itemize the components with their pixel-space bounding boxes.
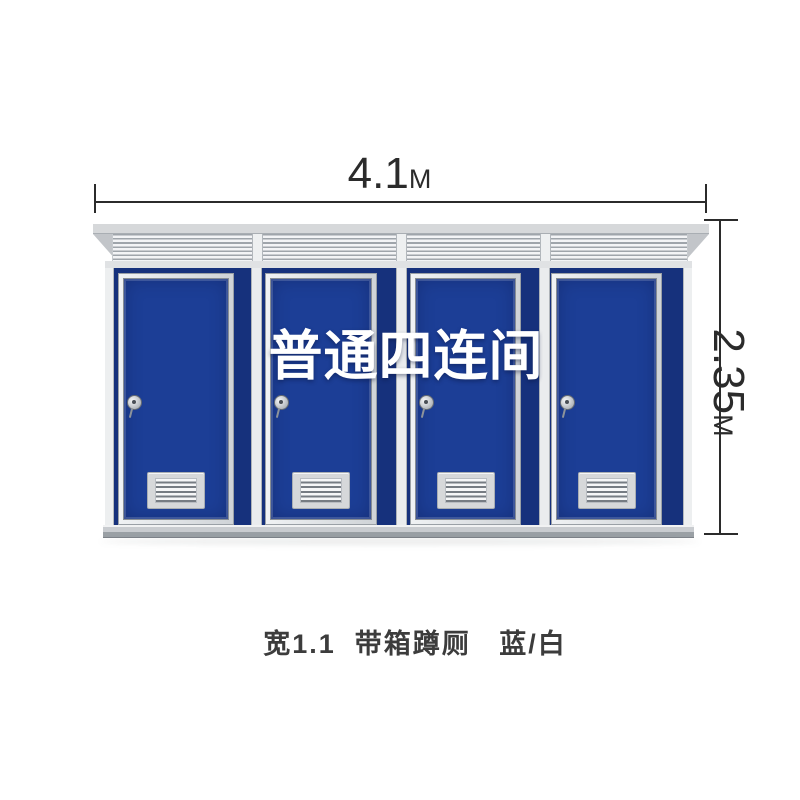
vent-band-post-3 bbox=[540, 234, 551, 261]
door-3-vent-slats bbox=[445, 478, 487, 503]
vent-band-post-1 bbox=[252, 234, 263, 261]
product-image: 4.1M 2.35M bbox=[0, 0, 800, 800]
door-1-panel bbox=[123, 278, 229, 520]
width-dimension-tick-right bbox=[705, 184, 707, 213]
section-divider-3 bbox=[539, 268, 550, 525]
door-4-lock-icon bbox=[560, 395, 575, 410]
door-1-lock-icon bbox=[127, 395, 142, 410]
caption-text: 宽1.1 带箱蹲厕 蓝/白 bbox=[30, 622, 800, 661]
roof-slab bbox=[93, 222, 709, 234]
door-1-vent-slats bbox=[155, 478, 197, 503]
wall-edge-left bbox=[105, 268, 114, 525]
door-4-vent bbox=[578, 472, 636, 509]
door-1 bbox=[118, 273, 234, 525]
height-dimension-unit: M bbox=[708, 414, 738, 438]
door-4-vent-slats bbox=[586, 478, 628, 503]
width-dimension-value: 4.1 bbox=[348, 149, 409, 198]
front-wall bbox=[105, 268, 692, 525]
door-1-vent bbox=[147, 472, 205, 509]
height-dimension-tick-bottom bbox=[704, 533, 738, 535]
door-3-lock-icon bbox=[419, 395, 434, 410]
door-2-vent-slats bbox=[300, 478, 342, 503]
height-dimension-value: 2.35 bbox=[704, 328, 753, 414]
height-dimension-label: 2.35M bbox=[706, 328, 750, 437]
wall-edge-right bbox=[683, 268, 692, 525]
roof-eave-right bbox=[686, 234, 709, 260]
width-dimension-unit: M bbox=[409, 164, 433, 194]
watermark-text: 普通四连间 bbox=[269, 312, 544, 391]
vent-band-post-2 bbox=[396, 234, 407, 261]
height-dimension-tick-top bbox=[704, 219, 738, 221]
door-4-panel bbox=[556, 278, 657, 520]
base-rail bbox=[103, 525, 694, 538]
door-2-lock-icon bbox=[274, 395, 289, 410]
door-3-vent bbox=[437, 472, 495, 509]
door-2-vent bbox=[292, 472, 350, 509]
section-divider-2 bbox=[396, 268, 407, 525]
width-dimension-tick-left bbox=[94, 184, 96, 213]
width-dimension-label: 4.1M bbox=[348, 152, 433, 196]
section-divider-1 bbox=[251, 268, 262, 525]
ground-shadow bbox=[100, 538, 700, 545]
width-dimension-line bbox=[95, 201, 707, 203]
door-4 bbox=[551, 273, 662, 525]
roof-vent-band bbox=[112, 234, 688, 261]
